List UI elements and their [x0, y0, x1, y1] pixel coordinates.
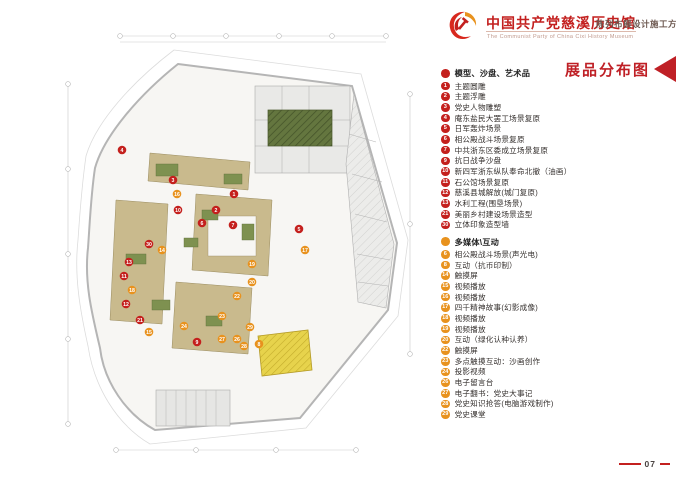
legend-item-number: 4 [441, 114, 450, 123]
plan-marker-number: 21 [137, 318, 143, 324]
plan-marker-number: 13 [126, 260, 132, 266]
legend-item-number: 14 [441, 271, 450, 280]
legend-item-label: 视频播放 [455, 324, 486, 335]
legend-item-label: 主题浮雕 [455, 91, 486, 102]
museum-title-english: The Communist Party of China Cixi Histor… [487, 34, 633, 40]
page-number-dash [619, 463, 641, 465]
legend-item: 4庵东盐民大罢工场景复原 [441, 113, 655, 124]
legend-item: 5日军轰炸场景 [441, 123, 655, 134]
plan-marker-number: 16 [174, 192, 180, 198]
legend-item-label: 互动（抗币印制） [455, 260, 517, 271]
legend-section-dot-icon [441, 237, 450, 246]
legend-item-number: 8 [441, 261, 450, 270]
legend-item: 13水利工程(围垦场景) [441, 198, 655, 209]
plan-marker-number: 30 [146, 242, 152, 248]
legend-item: 26电子留言台 [441, 377, 655, 388]
plan-marker-number: 12 [123, 302, 129, 308]
legend-item: 8互动（抗币印制） [441, 260, 655, 271]
legend-item-number: 12 [441, 189, 450, 198]
legend-item-label: 视频播放 [455, 281, 486, 292]
legend-item-label: 日军轰炸场景 [455, 123, 502, 134]
plan-marker-number: 27 [219, 337, 225, 343]
legend-item-label: 电子翻书：党史大事记 [455, 388, 533, 399]
plan-marker-number: 5 [298, 227, 301, 233]
yellow-room [258, 330, 312, 376]
exhibit-legend-list: 模型、沙盘、艺术品1主题圆雕2主题浮雕3党史人物雕塑4庵东盐民大罢工场景复原5日… [441, 62, 655, 420]
legend-item-number: 13 [441, 199, 450, 208]
legend-item-label: 电子留言台 [455, 377, 494, 388]
legend-item-label: 中共浙东区委成立场景复原 [455, 145, 549, 156]
legend-item: 10新四军浙东纵队奉命北撤（油画） [441, 166, 655, 177]
plan-marker-number: 20 [249, 280, 255, 286]
legend-item: 11石公馆场景复原 [441, 177, 655, 188]
plan-marker-number: 28 [241, 344, 247, 350]
legend-item-label: 党史知识抢答(电脑游戏制作) [455, 398, 554, 409]
legend-item: 9抗日战争沙盘 [441, 156, 655, 167]
legend-item-label: 触摸屏 [455, 270, 478, 281]
legend-item-number: 11 [441, 178, 450, 187]
legend-item-number: 3 [441, 103, 450, 112]
legend-item: 7中共浙东区委成立场景复原 [441, 145, 655, 156]
plan-marker-number: 18 [129, 288, 135, 294]
floor-plan: 1234567910111213213081415161718192022232… [56, 24, 428, 462]
legend-item: 6相公殿战斗场景复原 [441, 134, 655, 145]
legend-item: 15视频播放 [441, 281, 655, 292]
legend-item: 23多点触摸互动：沙画创作 [441, 356, 655, 367]
legend-item-number: 29 [441, 410, 450, 419]
legend-item-label: 慈溪县城解放(城门复原) [455, 187, 538, 198]
legend-item-number: 20 [441, 336, 450, 345]
legend-item-number: 23 [441, 357, 450, 366]
plan-marker-number: 26 [234, 337, 240, 343]
legend-item-label: 视频播放 [455, 313, 486, 324]
legend-item-label: 四千精神故事(幻影成像) [455, 302, 538, 313]
legend-item-label: 党史课堂 [455, 409, 486, 420]
plan-marker-number: 11 [121, 274, 127, 280]
legend-item-number: 28 [441, 400, 450, 409]
legend-item-label: 多点触摸互动：沙画创作 [455, 356, 541, 367]
legend-item-number: 19 [441, 325, 450, 334]
legend-item-label: 主题圆雕 [455, 81, 486, 92]
legend-item-number: 22 [441, 346, 450, 355]
legend-item-label: 视频播放 [455, 292, 486, 303]
header-rule [486, 31, 636, 32]
plan-marker-number: 2 [215, 208, 218, 214]
legend-item-label: 互动（绿化认种认养） [455, 334, 533, 345]
legend-item: 29党史课堂 [441, 409, 655, 420]
plan-marker-number: 19 [249, 262, 255, 268]
legend-item-number: 26 [441, 378, 450, 387]
legend-item-number: 21 [441, 210, 450, 219]
legend-item-label: 触摸屏 [455, 345, 478, 356]
legend-item: 14触摸屏 [441, 270, 655, 281]
legend-item: 19视频播放 [441, 324, 655, 335]
legend-item-number: 1 [441, 82, 450, 91]
legend-item: 20互动（绿化认种认养） [441, 335, 655, 346]
legend-item: 27电子翻书：党史大事记 [441, 388, 655, 399]
legend-item-number: 2 [441, 92, 450, 101]
legend-section-header: 模型、沙盘、艺术品 [441, 68, 655, 79]
legend-item-number: 27 [441, 389, 450, 398]
plan-marker-number: 9 [196, 340, 199, 346]
left-arrow-icon [654, 56, 676, 82]
legend-item-number: 9 [441, 157, 450, 166]
legend-item-label: 水利工程(围垦场景) [455, 198, 523, 209]
legend-item-label: 相公殿战斗场景(声光电) [455, 249, 538, 260]
stairs [156, 390, 230, 426]
legend-item-number: 30 [441, 221, 450, 230]
legend-section-dot-icon [441, 69, 450, 78]
legend-item-number: 7 [441, 146, 450, 155]
plan-marker-number: 7 [232, 223, 235, 229]
legend-item: 18视频播放 [441, 313, 655, 324]
plan-marker-number: 6 [201, 221, 204, 227]
legend-item-label: 抗日战争沙盘 [455, 155, 502, 166]
service-rooms [255, 86, 350, 173]
legend-item: 6相公殿战斗场景(声光电) [441, 249, 655, 260]
legend-item: 17四千精神故事(幻影成像) [441, 302, 655, 313]
document-type-label: 陈列布展设计施工方案 [596, 18, 676, 30]
legend-item-label: 新四军浙东纵队奉命北撤（油画） [455, 166, 572, 177]
plan-marker-number: 22 [234, 294, 240, 300]
legend-item-number: 6 [441, 135, 450, 144]
legend-item: 3党史人物雕塑 [441, 102, 655, 113]
plan-marker-number: 14 [159, 248, 165, 254]
legend-item-number: 10 [441, 167, 450, 176]
legend-item-number: 6 [441, 250, 450, 259]
plan-marker-number: 1 [233, 192, 236, 198]
hatched-green-room [268, 110, 332, 146]
legend-item-number: 15 [441, 282, 450, 291]
plan-marker-number: 23 [219, 314, 225, 320]
plan-marker-number: 3 [172, 178, 175, 184]
party-emblem-icon [444, 8, 480, 42]
legend-item-number: 24 [441, 368, 450, 377]
legend-item-label: 立体印象造型墙 [455, 219, 510, 230]
legend-section-label: 多媒体\互动 [455, 236, 499, 248]
legend-item-number: 18 [441, 314, 450, 323]
legend-item: 16视频播放 [441, 292, 655, 303]
legend-item: 24投影视频 [441, 367, 655, 378]
legend-item-label: 相公殿战斗场景复原 [455, 134, 525, 145]
legend-item: 12慈溪县城解放(城门复原) [441, 188, 655, 199]
page-number-block: 07 [619, 459, 670, 469]
plan-marker-number: 24 [181, 324, 187, 330]
page-number-dash [660, 463, 670, 465]
plan-marker-number: 17 [302, 248, 308, 254]
plan-marker-number: 29 [247, 325, 253, 331]
legend-item: 28党史知识抢答(电脑游戏制作) [441, 399, 655, 410]
legend-item-number: 16 [441, 293, 450, 302]
plan-marker-number: 4 [121, 148, 124, 154]
legend-item: 1主题圆雕 [441, 81, 655, 92]
legend-item: 22触摸屏 [441, 345, 655, 356]
legend-item-number: 5 [441, 124, 450, 133]
legend-item-number: 17 [441, 303, 450, 312]
legend-item: 30立体印象造型墙 [441, 220, 655, 231]
legend-item: 2主题浮雕 [441, 91, 655, 102]
legend-item-label: 石公馆场景复原 [455, 177, 510, 188]
plan-marker-number: 10 [175, 208, 181, 214]
legend-item-label: 投影视频 [455, 366, 486, 377]
legend-item-label: 庵东盐民大罢工场景复原 [455, 113, 541, 124]
plan-marker-number: 8 [258, 342, 261, 348]
plan-marker-number: 15 [146, 330, 152, 336]
page-number: 07 [645, 459, 656, 469]
legend-item-label: 党史人物雕塑 [455, 102, 502, 113]
legend-section-label: 模型、沙盘、艺术品 [455, 67, 531, 79]
legend-item-label: 美丽乡村建设场景造型 [455, 209, 533, 220]
legend-item: 21美丽乡村建设场景造型 [441, 209, 655, 220]
legend-section-header: 多媒体\互动 [441, 236, 655, 247]
